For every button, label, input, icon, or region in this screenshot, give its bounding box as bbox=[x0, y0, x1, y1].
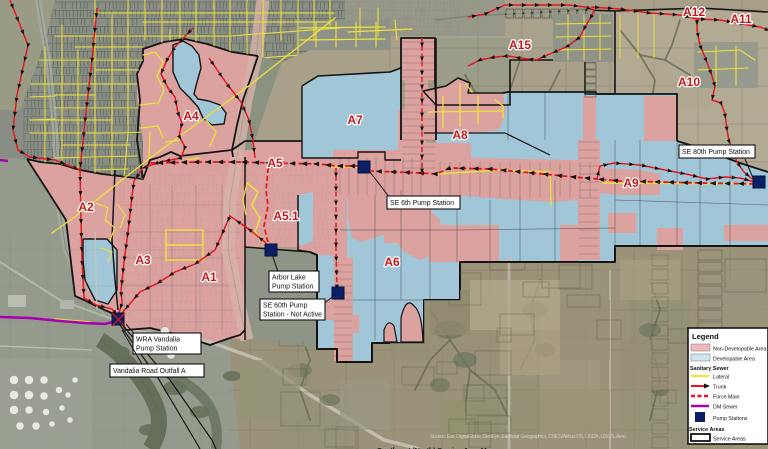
svg-text:A9: A9 bbox=[623, 176, 639, 190]
svg-text:A7: A7 bbox=[347, 113, 363, 127]
svg-text:SE 60th Pump: SE 60th Pump bbox=[263, 302, 308, 309]
svg-text:Trunk: Trunk bbox=[713, 385, 727, 391]
svg-text:Station - Not Active: Station - Not Active bbox=[263, 312, 322, 319]
svg-text:Pump Station: Pump Station bbox=[136, 346, 178, 353]
svg-text:Service Areas: Service Areas bbox=[689, 427, 724, 433]
svg-text:A1: A1 bbox=[201, 270, 217, 284]
svg-text:Pump Stations: Pump Stations bbox=[713, 416, 748, 422]
svg-text:Vandalia Road Outfall A: Vandalia Road Outfall A bbox=[113, 368, 186, 375]
svg-text:SE 80th Pump Station: SE 80th Pump Station bbox=[682, 149, 750, 156]
svg-text:Pump Station: Pump Station bbox=[272, 284, 314, 291]
svg-text:Sanitary Sewer: Sanitary Sewer bbox=[690, 366, 730, 372]
svg-text:A11: A11 bbox=[730, 12, 752, 26]
svg-text:A15: A15 bbox=[509, 38, 531, 52]
svg-text:A2: A2 bbox=[78, 200, 94, 214]
svg-text:SE 6th Pump Station: SE 6th Pump Station bbox=[390, 200, 454, 207]
svg-text:Source: Esri, DigitalGlobe, Ge: Source: Esri, DigitalGlobe, GeoEye, Eart… bbox=[430, 434, 626, 440]
svg-text:Lateral: Lateral bbox=[713, 375, 729, 381]
svg-text:Service Areas: Service Areas bbox=[713, 437, 746, 443]
svg-text:A4: A4 bbox=[183, 109, 199, 123]
svg-text:Legend: Legend bbox=[692, 332, 719, 341]
svg-text:Non-Developable Area: Non-Developable Area bbox=[713, 347, 766, 353]
svg-text:Arbor Lake: Arbor Lake bbox=[272, 274, 306, 281]
svg-text:A5: A5 bbox=[267, 156, 283, 170]
svg-text:A6: A6 bbox=[384, 255, 400, 269]
svg-text:Developable Area: Developable Area bbox=[713, 357, 755, 363]
svg-text:A5.1: A5.1 bbox=[273, 209, 299, 223]
svg-text:A10: A10 bbox=[678, 75, 700, 89]
svg-text:WRA Vandalia: WRA Vandalia bbox=[136, 336, 180, 343]
svg-text:DM Sewer: DM Sewer bbox=[713, 405, 738, 411]
svg-text:Force Main: Force Main bbox=[713, 395, 740, 401]
svg-text:A3: A3 bbox=[135, 253, 151, 267]
svg-text:A12: A12 bbox=[683, 5, 705, 19]
svg-text:A8: A8 bbox=[452, 128, 468, 142]
